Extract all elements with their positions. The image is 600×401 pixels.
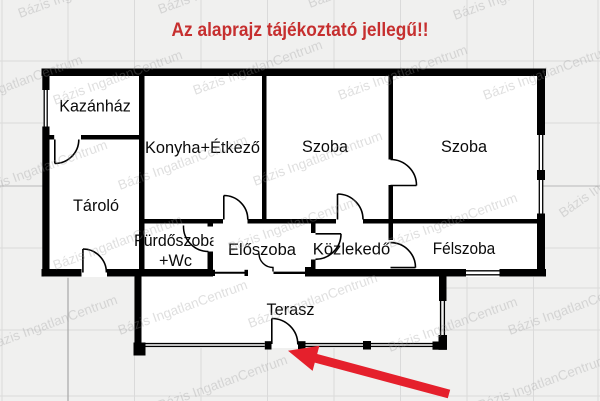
svg-text:+Wc: +Wc [159,251,192,270]
svg-text:Az alaprajz tájékoztató jelleg: Az alaprajz tájékoztató jellegű!! [172,19,429,41]
svg-text:Közlekedő: Közlekedő [313,240,391,259]
svg-text:Szoba: Szoba [441,137,488,156]
svg-text:Tároló: Tároló [73,196,119,215]
svg-text:Félszoba: Félszoba [433,239,496,258]
